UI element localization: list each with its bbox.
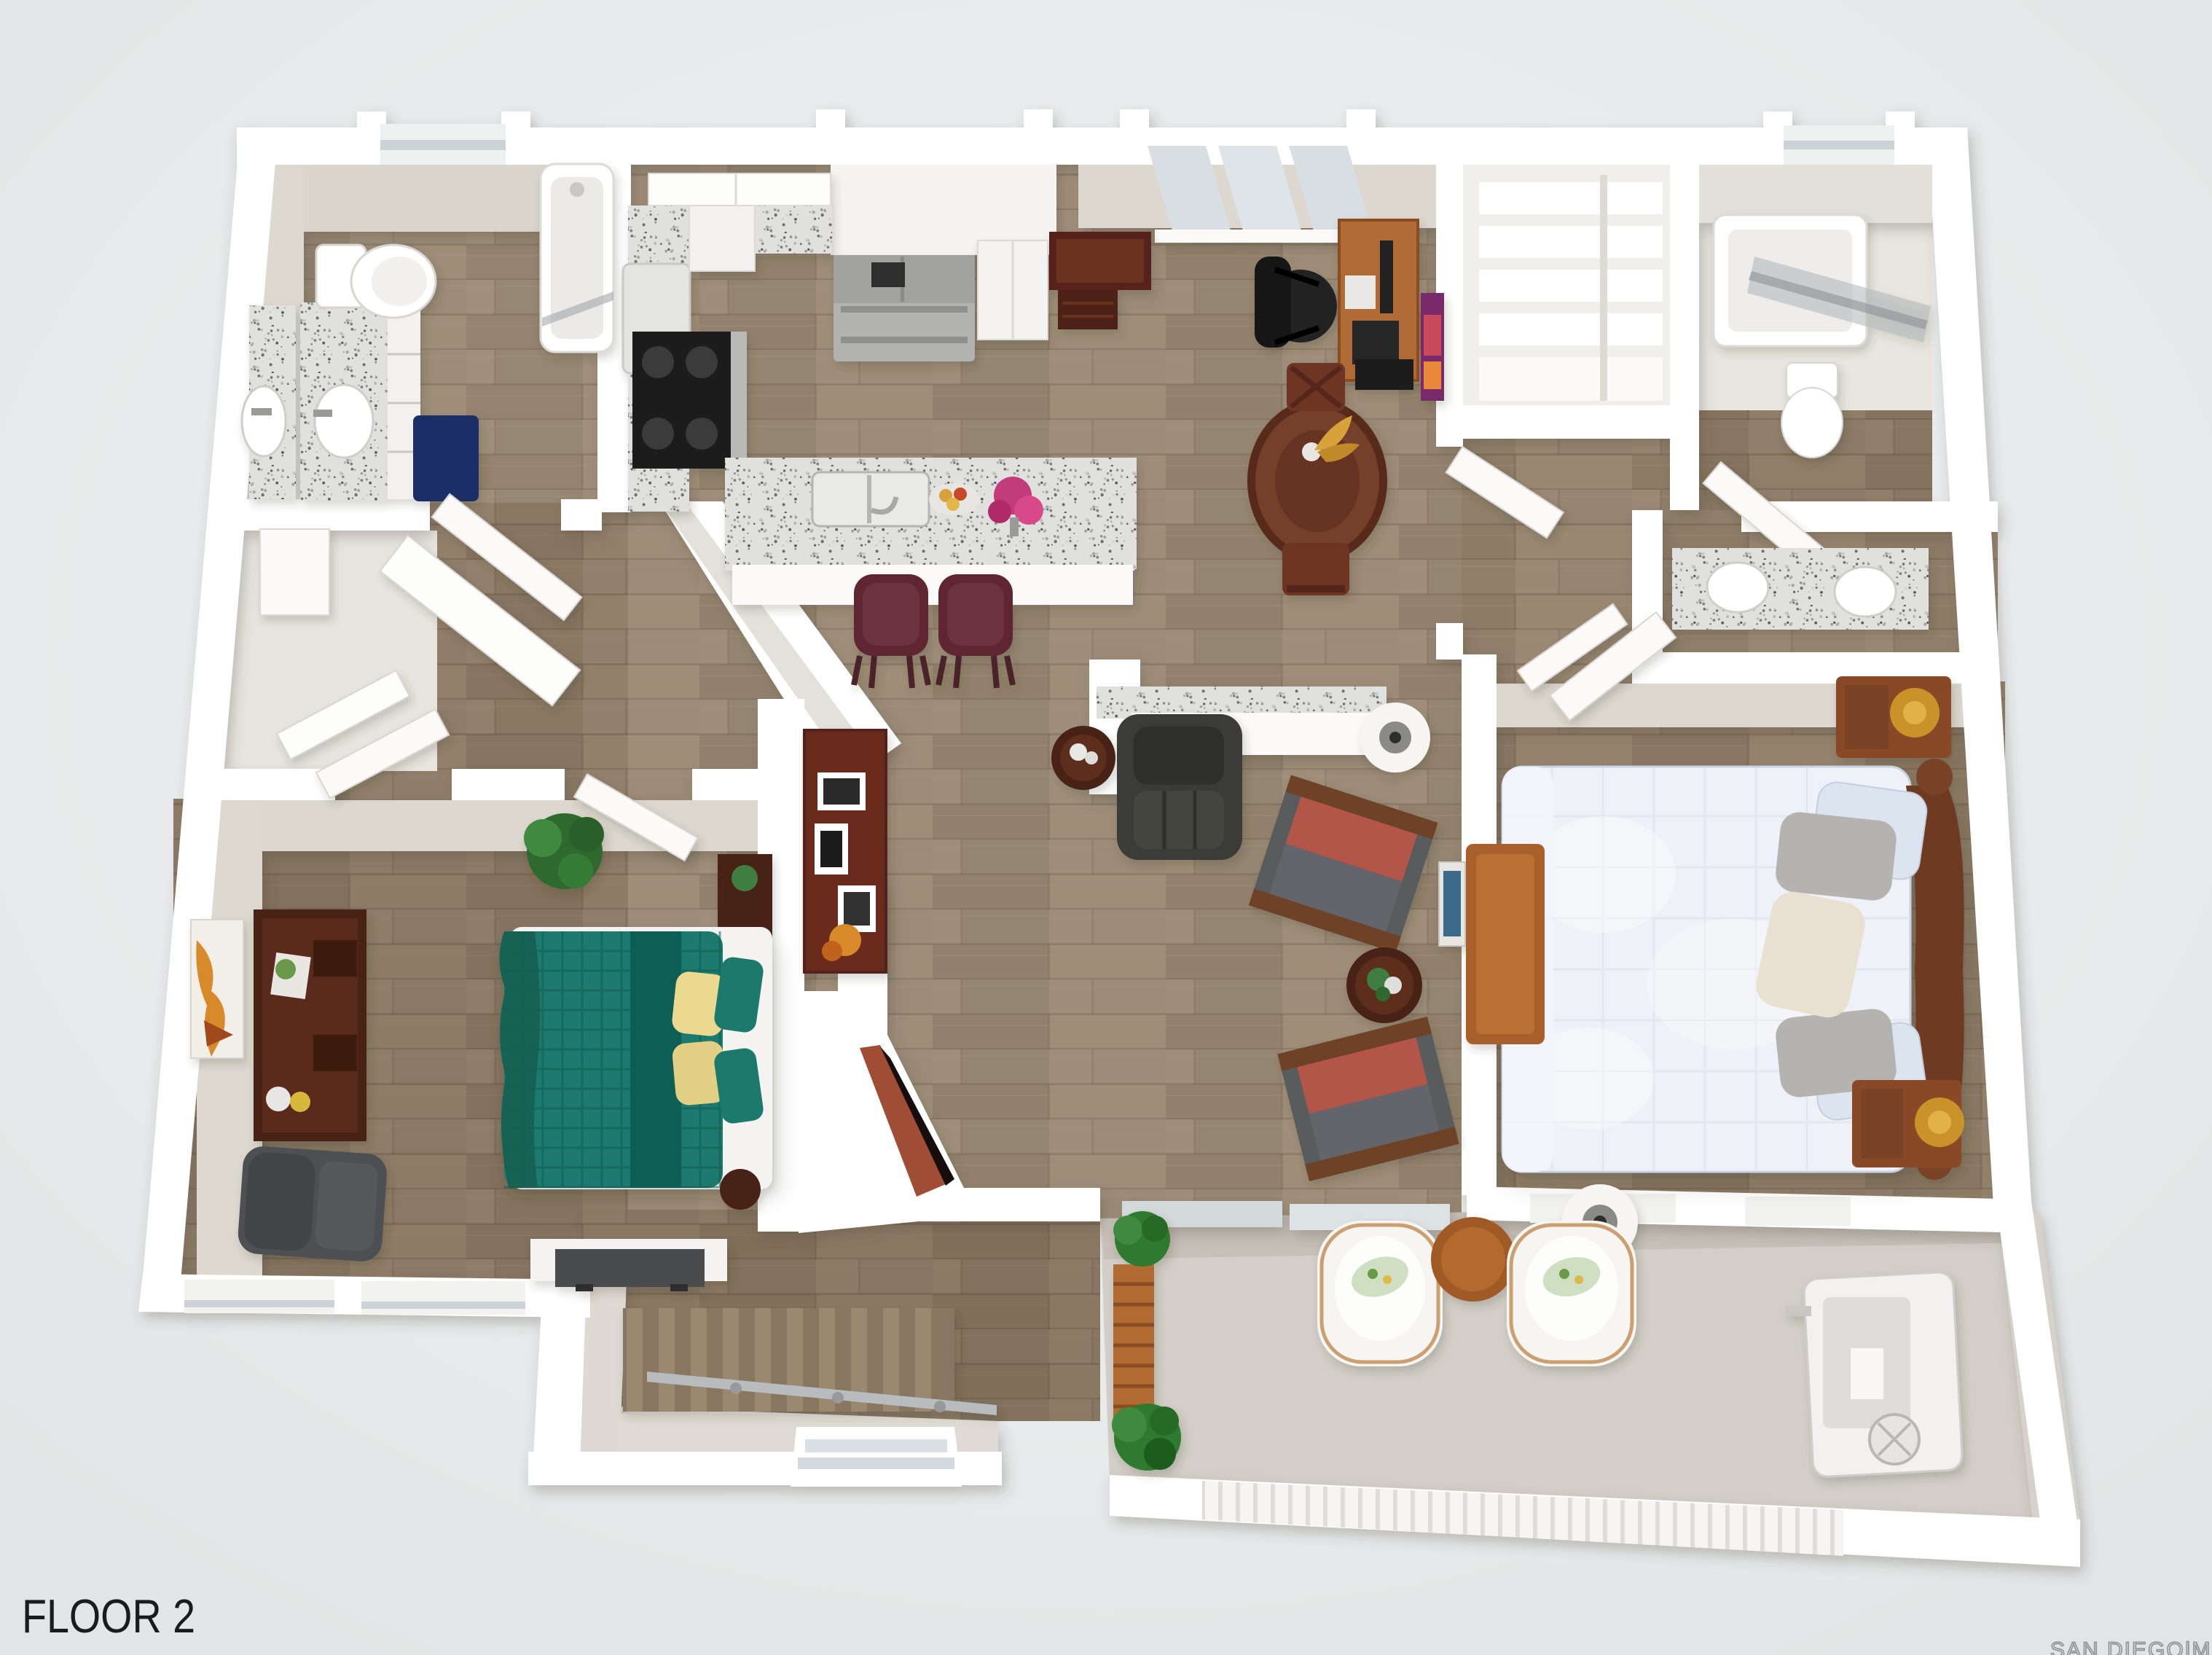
svg-text:SAN DIEGO|MLS: SAN DIEGO|MLS bbox=[2050, 1638, 2212, 1655]
svg-text:FLOOR 2: FLOOR 2 bbox=[22, 1589, 195, 1643]
